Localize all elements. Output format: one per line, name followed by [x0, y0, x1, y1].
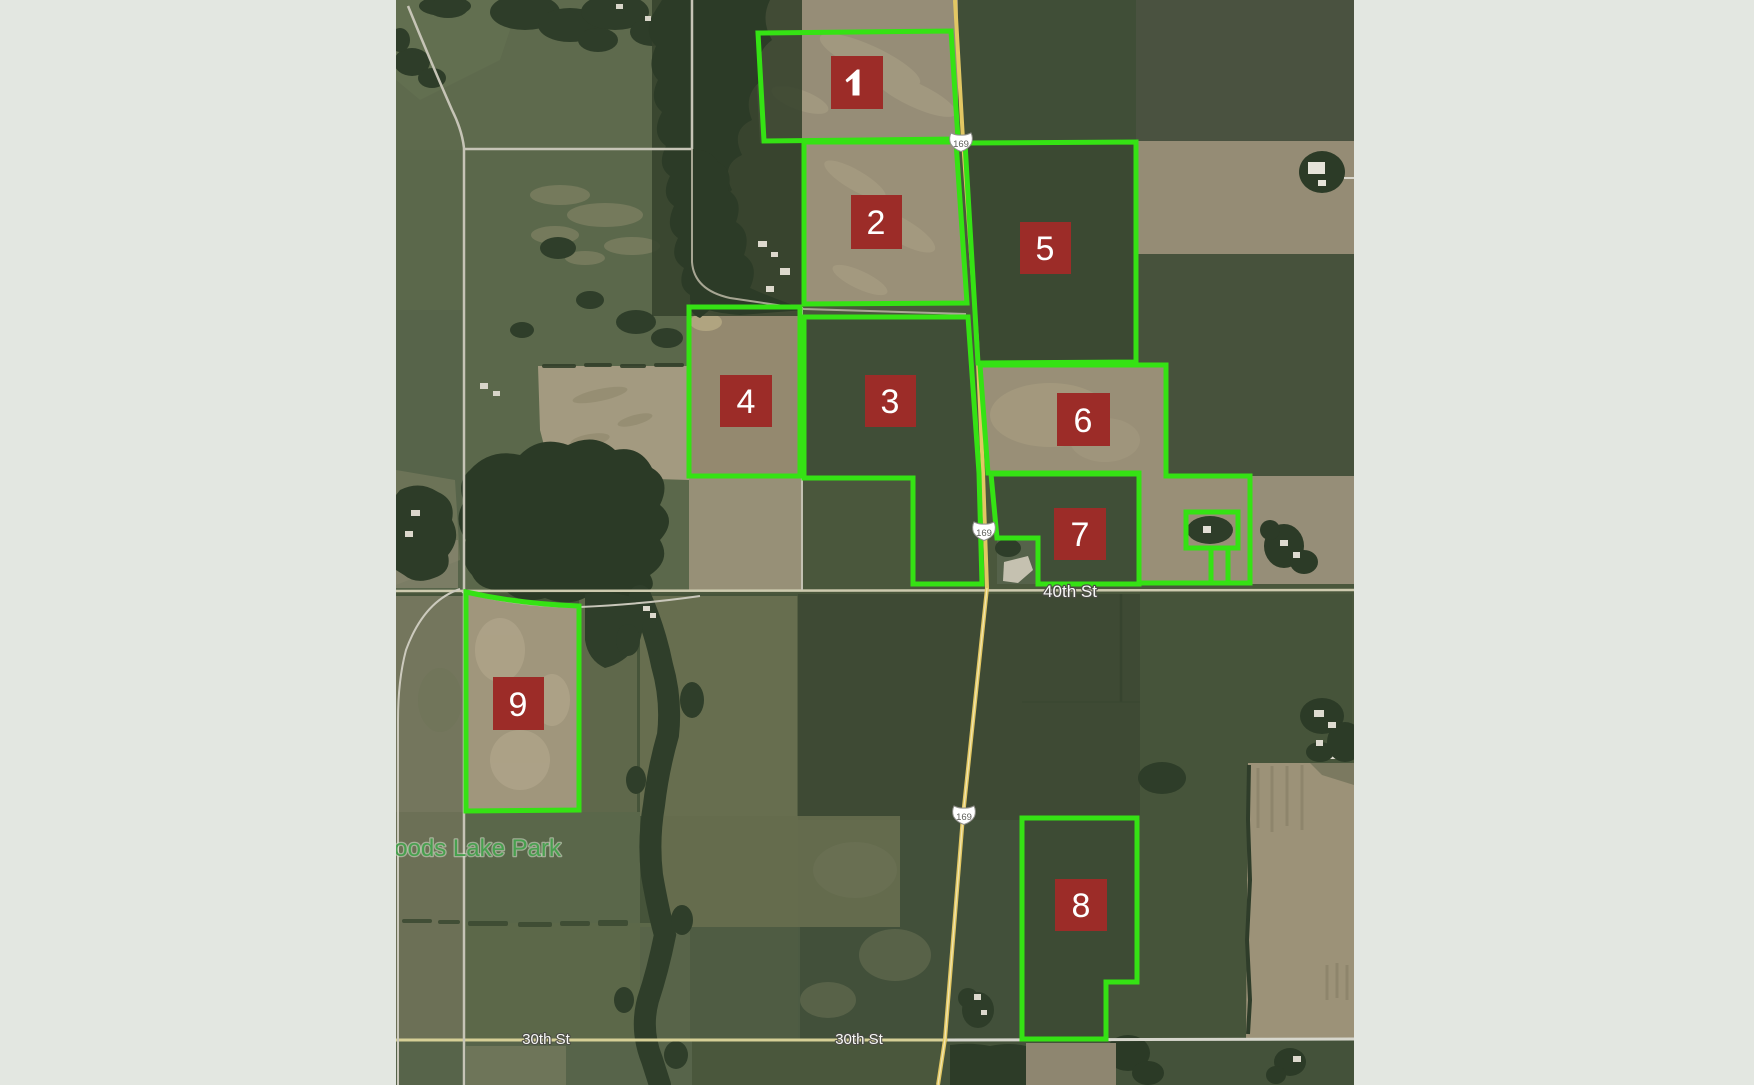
svg-text:30th St: 30th St: [522, 1031, 570, 1048]
svg-text:6: 6: [1074, 402, 1093, 440]
svg-text:3: 3: [881, 383, 900, 421]
svg-text:7: 7: [1071, 516, 1090, 554]
svg-text:2: 2: [867, 204, 886, 242]
svg-text:8: 8: [1072, 887, 1091, 925]
svg-text:9: 9: [509, 686, 528, 724]
svg-text:5: 5: [1036, 230, 1055, 268]
svg-text:169: 169: [956, 812, 972, 823]
svg-text:169: 169: [953, 139, 969, 150]
svg-text:4: 4: [737, 383, 756, 421]
svg-text:40th St: 40th St: [1043, 582, 1097, 601]
svg-text:30th St: 30th St: [835, 1031, 883, 1048]
svg-text:Woods Lake Park: Woods Lake Park: [372, 835, 562, 862]
svg-text:169: 169: [976, 528, 992, 539]
